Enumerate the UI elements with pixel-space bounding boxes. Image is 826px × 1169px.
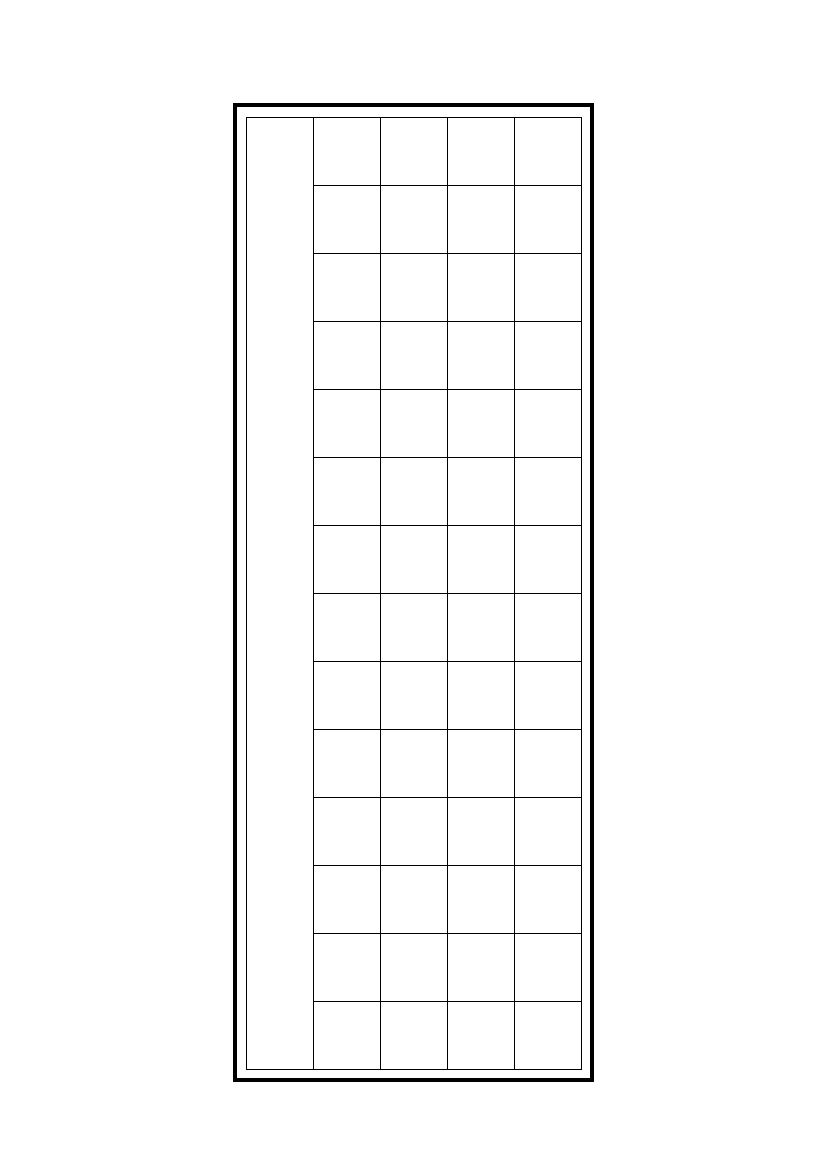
document-page xyxy=(0,0,826,1169)
grid-cell xyxy=(448,322,515,390)
page-border-frame xyxy=(233,103,594,1082)
grid-cell xyxy=(381,730,448,798)
grid-cell xyxy=(314,1002,381,1070)
grid-cell xyxy=(515,934,582,1002)
grid-cell xyxy=(515,594,582,662)
grid-cell xyxy=(381,186,448,254)
grid-cell xyxy=(515,458,582,526)
grid-cell xyxy=(381,798,448,866)
grid-cell xyxy=(381,390,448,458)
grid-cell xyxy=(515,798,582,866)
grid-cell xyxy=(448,1002,515,1070)
grid-cell xyxy=(448,390,515,458)
grid-cell xyxy=(381,934,448,1002)
grid-cell xyxy=(448,458,515,526)
grid-cell xyxy=(448,186,515,254)
grid-cell xyxy=(515,526,582,594)
grid-cell xyxy=(381,526,448,594)
grid-cell xyxy=(381,118,448,186)
grid-cell xyxy=(314,186,381,254)
grid-cell xyxy=(448,118,515,186)
grid-cell xyxy=(448,254,515,322)
grid-cell xyxy=(515,662,582,730)
grid-cell xyxy=(314,390,381,458)
grid-row xyxy=(247,118,582,186)
grid-cell xyxy=(381,662,448,730)
grid-cell xyxy=(314,526,381,594)
grid-cell xyxy=(448,594,515,662)
grid-cell xyxy=(381,322,448,390)
grid-cell xyxy=(515,390,582,458)
grid-cell xyxy=(448,662,515,730)
side-column-merged-cell xyxy=(247,118,314,1070)
grid-cell xyxy=(448,526,515,594)
grid-cell xyxy=(314,662,381,730)
grid-cell xyxy=(448,798,515,866)
grid-cell xyxy=(314,458,381,526)
grid-cell xyxy=(515,1002,582,1070)
grid-cell xyxy=(448,730,515,798)
grid-cell xyxy=(448,866,515,934)
writing-grid-table xyxy=(246,117,582,1070)
grid-cell xyxy=(314,594,381,662)
grid-cell xyxy=(515,866,582,934)
grid-cell xyxy=(381,594,448,662)
grid-cell xyxy=(515,118,582,186)
grid-cell xyxy=(515,730,582,798)
grid-cell xyxy=(381,866,448,934)
grid-cell xyxy=(314,934,381,1002)
grid-cell xyxy=(314,322,381,390)
writing-grid-body xyxy=(247,118,582,1070)
grid-cell xyxy=(515,186,582,254)
grid-cell xyxy=(314,730,381,798)
grid-cell xyxy=(381,458,448,526)
grid-cell xyxy=(314,866,381,934)
grid-cell xyxy=(381,254,448,322)
grid-cell xyxy=(314,254,381,322)
grid-cell xyxy=(381,1002,448,1070)
grid-cell xyxy=(515,254,582,322)
grid-cell xyxy=(448,934,515,1002)
grid-cell xyxy=(314,118,381,186)
grid-cell xyxy=(515,322,582,390)
grid-cell xyxy=(314,798,381,866)
